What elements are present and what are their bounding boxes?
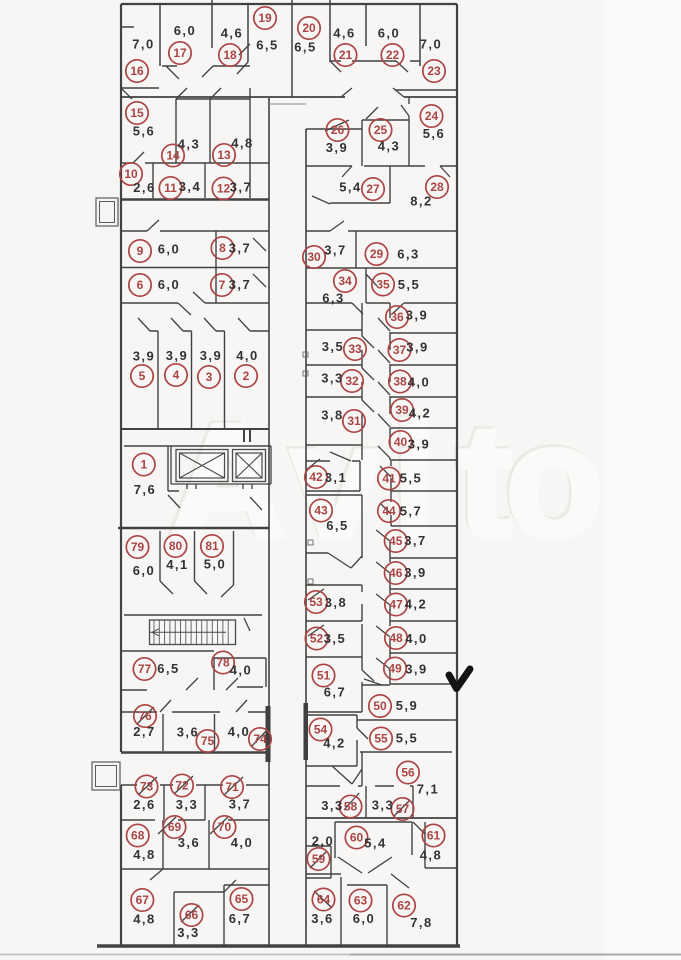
- svg-text:41: 41: [382, 472, 396, 486]
- svg-text:3,7: 3,7: [230, 179, 253, 194]
- svg-text:31: 31: [347, 414, 361, 428]
- svg-text:4,0: 4,0: [405, 631, 428, 646]
- svg-text:48: 48: [389, 631, 403, 645]
- svg-text:16: 16: [130, 64, 144, 78]
- svg-text:38: 38: [393, 375, 407, 389]
- svg-text:6,5: 6,5: [157, 661, 180, 676]
- svg-text:4,3: 4,3: [178, 136, 201, 151]
- svg-text:45: 45: [389, 534, 403, 548]
- svg-text:6,3: 6,3: [322, 290, 345, 305]
- svg-text:4,6: 4,6: [333, 25, 356, 40]
- svg-text:4,2: 4,2: [323, 735, 346, 750]
- svg-text:34: 34: [338, 274, 352, 288]
- svg-text:6: 6: [137, 278, 144, 292]
- svg-text:4,2: 4,2: [409, 405, 432, 420]
- svg-text:6,3: 6,3: [397, 246, 420, 261]
- svg-text:53: 53: [309, 595, 323, 609]
- svg-text:24: 24: [425, 109, 439, 123]
- svg-text:4,3: 4,3: [378, 138, 401, 153]
- svg-text:3,6: 3,6: [177, 724, 200, 739]
- svg-text:5: 5: [139, 369, 146, 383]
- svg-text:3,8: 3,8: [321, 407, 344, 422]
- svg-text:6,7: 6,7: [229, 911, 252, 926]
- svg-text:5,9: 5,9: [396, 698, 419, 713]
- svg-text:50: 50: [373, 699, 387, 713]
- svg-text:6,0: 6,0: [158, 241, 181, 256]
- svg-text:6,0: 6,0: [174, 23, 197, 38]
- svg-text:28: 28: [430, 180, 444, 194]
- svg-text:49: 49: [388, 662, 402, 676]
- svg-text:30: 30: [307, 250, 321, 264]
- svg-text:32: 32: [345, 374, 359, 388]
- svg-text:8: 8: [219, 241, 226, 255]
- svg-text:t: t: [458, 391, 511, 570]
- svg-text:2: 2: [243, 369, 250, 383]
- svg-text:5,4: 5,4: [364, 835, 387, 850]
- svg-text:73: 73: [140, 780, 154, 794]
- svg-text:39: 39: [395, 403, 409, 417]
- svg-text:7,0: 7,0: [132, 36, 155, 51]
- svg-text:71: 71: [225, 780, 239, 794]
- svg-text:15: 15: [130, 106, 144, 120]
- svg-text:3,1: 3,1: [325, 470, 348, 485]
- svg-text:52: 52: [310, 632, 324, 646]
- svg-text:2,0: 2,0: [312, 833, 335, 848]
- svg-text:3,9: 3,9: [200, 348, 223, 363]
- svg-text:75: 75: [201, 734, 215, 748]
- svg-text:4,8: 4,8: [133, 847, 156, 862]
- svg-text:5,5: 5,5: [396, 730, 419, 745]
- svg-text:4,0: 4,0: [230, 662, 253, 677]
- svg-text:3,5: 3,5: [324, 631, 347, 646]
- svg-text:70: 70: [218, 820, 232, 834]
- svg-text:3,9: 3,9: [406, 307, 429, 322]
- svg-text:7,6: 7,6: [134, 482, 157, 497]
- svg-text:60: 60: [350, 831, 364, 845]
- svg-text:4,0: 4,0: [236, 348, 259, 363]
- svg-text:2,7: 2,7: [133, 724, 156, 739]
- svg-text:3,3: 3,3: [372, 797, 395, 812]
- svg-text:37: 37: [393, 343, 407, 357]
- svg-text:3,4: 3,4: [179, 179, 202, 194]
- svg-text:33: 33: [348, 342, 362, 356]
- svg-text:9: 9: [137, 244, 144, 258]
- svg-text:1: 1: [140, 458, 147, 472]
- svg-text:5,4: 5,4: [339, 179, 362, 194]
- svg-text:3,3: 3,3: [177, 925, 200, 940]
- svg-text:36: 36: [390, 310, 404, 324]
- svg-text:4,0: 4,0: [408, 374, 431, 389]
- svg-text:72: 72: [175, 779, 189, 793]
- svg-text:25: 25: [374, 123, 388, 137]
- svg-text:3,9: 3,9: [405, 661, 428, 676]
- svg-text:4,0: 4,0: [231, 835, 254, 850]
- svg-text:4,0: 4,0: [228, 724, 251, 739]
- svg-text:4: 4: [173, 368, 180, 382]
- svg-text:43: 43: [314, 504, 328, 518]
- svg-text:4,8: 4,8: [231, 135, 254, 150]
- svg-text:69: 69: [168, 820, 182, 834]
- svg-text:o: o: [506, 391, 604, 570]
- svg-text:6,5: 6,5: [256, 37, 279, 52]
- svg-text:5,6: 5,6: [423, 126, 446, 141]
- svg-text:79: 79: [131, 540, 145, 554]
- svg-text:3: 3: [206, 370, 213, 384]
- svg-text:74: 74: [253, 732, 267, 746]
- svg-text:2,6: 2,6: [133, 797, 156, 812]
- svg-text:3,7: 3,7: [229, 796, 252, 811]
- svg-text:6,0: 6,0: [133, 563, 156, 578]
- svg-text:44: 44: [382, 504, 396, 518]
- svg-text:6,0: 6,0: [378, 25, 401, 40]
- svg-text:11: 11: [164, 181, 177, 195]
- svg-text:5,5: 5,5: [398, 277, 421, 292]
- svg-text:6,0: 6,0: [353, 911, 376, 926]
- svg-text:55: 55: [374, 732, 388, 746]
- svg-text:76: 76: [138, 709, 152, 723]
- svg-text:26: 26: [331, 123, 345, 137]
- svg-text:27: 27: [366, 182, 380, 196]
- svg-text:58: 58: [344, 800, 358, 814]
- svg-text:4,8: 4,8: [133, 911, 156, 926]
- svg-text:5,5: 5,5: [400, 470, 423, 485]
- svg-text:23: 23: [427, 64, 441, 78]
- svg-text:7,8: 7,8: [410, 915, 433, 930]
- svg-text:80: 80: [169, 539, 183, 553]
- svg-text:20: 20: [302, 21, 316, 35]
- svg-text:13: 13: [217, 148, 231, 162]
- svg-text:5,0: 5,0: [204, 556, 227, 571]
- svg-text:4,1: 4,1: [166, 557, 189, 572]
- svg-text:3,7: 3,7: [404, 533, 427, 548]
- svg-text:7,0: 7,0: [420, 36, 443, 51]
- svg-text:47: 47: [389, 598, 403, 612]
- svg-text:21: 21: [339, 48, 353, 62]
- svg-text:63: 63: [354, 894, 368, 908]
- svg-text:3,3: 3,3: [321, 370, 344, 385]
- svg-text:3,3: 3,3: [321, 798, 344, 813]
- svg-text:6,5: 6,5: [294, 39, 317, 54]
- svg-text:40: 40: [394, 435, 408, 449]
- svg-text:3,9: 3,9: [166, 348, 189, 363]
- svg-text:3,8: 3,8: [325, 595, 348, 610]
- svg-text:3,6: 3,6: [178, 835, 201, 850]
- svg-text:46: 46: [389, 566, 403, 580]
- svg-text:81: 81: [205, 539, 219, 553]
- svg-text:6,7: 6,7: [324, 684, 347, 699]
- svg-text:62: 62: [397, 899, 411, 913]
- svg-text:3,9: 3,9: [133, 348, 156, 363]
- svg-text:68: 68: [131, 829, 145, 843]
- svg-text:77: 77: [138, 662, 152, 676]
- svg-text:17: 17: [173, 46, 187, 60]
- svg-text:64: 64: [317, 893, 331, 907]
- svg-text:3,9: 3,9: [408, 436, 431, 451]
- svg-text:2,6: 2,6: [133, 180, 156, 195]
- svg-text:4,2: 4,2: [405, 596, 428, 611]
- svg-text:3,5: 3,5: [322, 339, 345, 354]
- svg-text:19: 19: [258, 11, 272, 25]
- svg-text:66: 66: [185, 908, 199, 922]
- svg-text:3,7: 3,7: [229, 277, 252, 292]
- svg-text:4,8: 4,8: [420, 847, 443, 862]
- svg-text:18: 18: [223, 48, 237, 62]
- svg-text:22: 22: [386, 48, 400, 62]
- svg-text:6,0: 6,0: [158, 277, 181, 292]
- svg-text:4,6: 4,6: [221, 25, 244, 40]
- svg-text:42: 42: [309, 470, 323, 484]
- svg-text:5,7: 5,7: [400, 503, 423, 518]
- svg-text:29: 29: [370, 247, 384, 261]
- svg-text:59: 59: [312, 852, 326, 866]
- svg-text:57: 57: [396, 802, 410, 816]
- svg-text:3,7: 3,7: [229, 240, 252, 255]
- svg-text:56: 56: [401, 766, 415, 780]
- svg-text:3,9: 3,9: [404, 565, 427, 580]
- svg-text:7: 7: [219, 278, 226, 292]
- svg-text:5,6: 5,6: [133, 123, 156, 138]
- svg-text:8,2: 8,2: [410, 193, 433, 208]
- svg-text:3,9: 3,9: [326, 140, 349, 155]
- svg-text:3,9: 3,9: [406, 339, 429, 354]
- svg-text:3,3: 3,3: [176, 797, 199, 812]
- svg-text:7,1: 7,1: [417, 781, 440, 796]
- svg-text:6,5: 6,5: [326, 518, 349, 533]
- svg-text:78: 78: [216, 656, 230, 670]
- svg-text:3,6: 3,6: [311, 911, 334, 926]
- svg-text:65: 65: [235, 892, 249, 906]
- svg-text:35: 35: [376, 278, 390, 292]
- svg-text:61: 61: [427, 829, 441, 843]
- svg-text:67: 67: [136, 893, 150, 907]
- svg-text:3,7: 3,7: [324, 242, 347, 257]
- svg-text:51: 51: [317, 669, 331, 683]
- svg-text:12: 12: [217, 182, 231, 196]
